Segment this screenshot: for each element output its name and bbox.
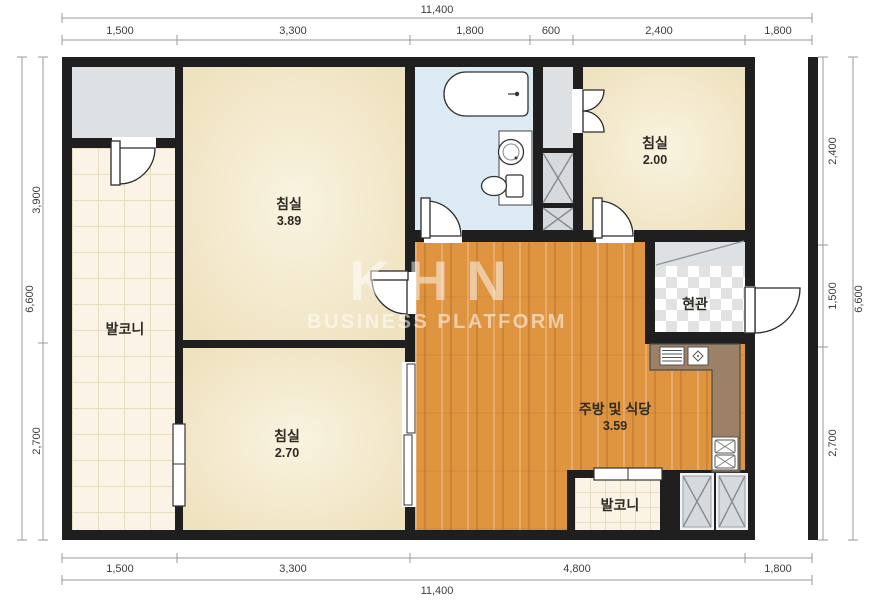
dim-bottom-seg-3: 1,800 (748, 562, 808, 576)
toilet-icon (482, 175, 524, 197)
dim-top-seg-2: 1,800 (440, 24, 500, 38)
dim-top-seg-5: 1,800 (748, 24, 808, 38)
kitchen-sink-icon (660, 347, 684, 365)
kitchen-appliance-icon (688, 347, 708, 365)
dim-top-seg-4: 2,400 (629, 24, 689, 38)
stove-icon (712, 437, 738, 470)
duct-box-right-icon (716, 473, 748, 530)
entrance-closet-line-icon (656, 241, 744, 265)
floor-plan: 11,400 1,500 3,300 1,800 600 2,400 1,800… (0, 0, 878, 603)
dim-right-total: 6,600 (852, 269, 866, 329)
dim-top-seg-0: 1,500 (90, 24, 150, 38)
balcony-window-icon (173, 424, 185, 506)
bathroom-door-icon (421, 198, 461, 238)
dim-bottom-total: 11,400 (407, 584, 467, 598)
bedroom-upper-right-door-icon (593, 198, 633, 238)
dim-top-seg-1: 3,300 (263, 24, 323, 38)
dim-top-total: 11,400 (407, 3, 467, 17)
dim-bottom-seg-0: 1,500 (90, 562, 150, 576)
closet-double-door-icon (583, 90, 604, 132)
balcony-bottom-window-icon (594, 468, 662, 480)
dim-bottom-seg-2: 4,800 (547, 562, 607, 576)
shaft-x-icon (543, 153, 573, 230)
dim-right-seg-1: 1,500 (826, 266, 840, 326)
dim-top-seg-3: 600 (521, 24, 581, 38)
dim-left-total: 6,600 (23, 269, 37, 329)
bedroom-main-door-icon (371, 271, 408, 314)
dim-left-seg-1: 2,700 (30, 411, 44, 471)
dim-left-seg-0: 3,900 (30, 170, 44, 230)
dim-right-seg-0: 2,400 (826, 121, 840, 181)
balcony-door-icon (111, 141, 155, 185)
dim-right-seg-2: 2,700 (826, 413, 840, 473)
sliding-door-icon (402, 362, 416, 507)
dim-bottom-seg-1: 3,300 (263, 562, 323, 576)
plan-overlay (0, 0, 878, 603)
entry-door-icon (745, 287, 800, 333)
bathtub-icon (444, 72, 528, 116)
duct-box-left-icon (680, 473, 714, 530)
